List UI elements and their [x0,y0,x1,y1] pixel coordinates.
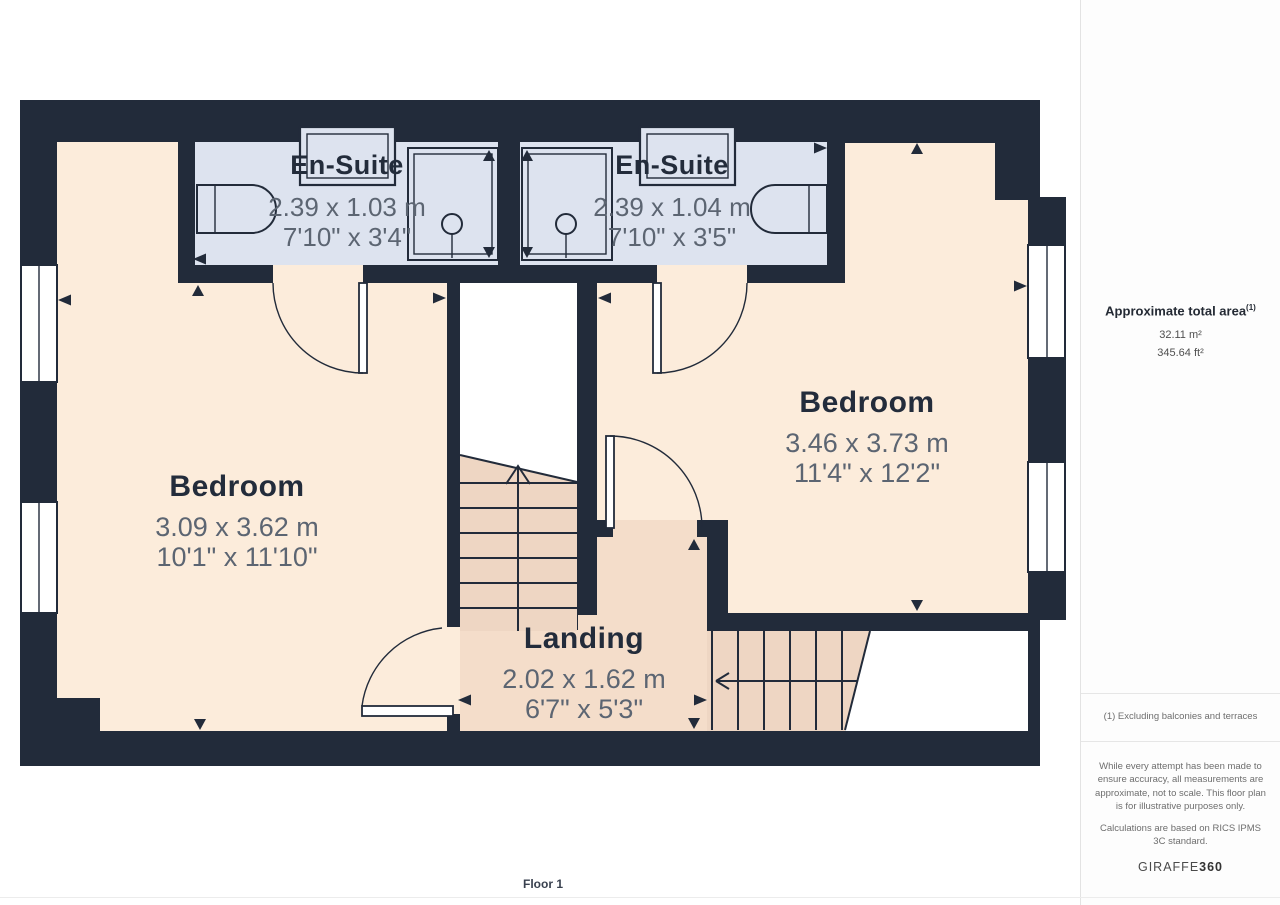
area-footnote: (1) Excluding balconies and terraces [1081,710,1280,723]
room-dims-metric: 3.46 x 3.73 m [785,428,949,458]
room-dims-imperial: 6'7" x 5'3" [502,694,666,724]
room-dims-imperial: 7'10" x 3'4" [268,222,426,252]
room-dims-imperial: 7'10" x 3'5" [593,222,751,252]
room-label-ensuite-right: En-Suite 2.39 x 1.04 m 7'10" x 3'5" [593,150,751,252]
room-name: Bedroom [155,470,319,504]
area-footnote-marker: (1) [1246,303,1256,312]
window-icon [1028,462,1065,572]
floor-label: Floor 1 [523,877,563,891]
area-title: Approximate total area(1) [1081,303,1280,318]
area-title-text: Approximate total area [1105,303,1246,318]
room-name: En-Suite [268,150,426,180]
sidebar-divider [1081,693,1280,694]
door-opening [613,520,697,537]
window-icon [21,502,57,613]
bottom-divider [0,897,1280,898]
room-name: En-Suite [593,150,751,180]
standards-note: Calculations are based on RICS IPMS 3C s… [1081,822,1280,849]
area-metric-value: 32.11 m² [1081,326,1280,344]
total-area-summary: Approximate total area(1) 32.11 m² 345.6… [1081,303,1280,362]
window-icon [21,265,57,382]
door-opening [447,627,460,714]
window-icon [1028,245,1065,358]
brand-suffix: 360 [1199,860,1223,874]
sidebar-divider [1081,741,1280,742]
brand-text: GIRAFFE [1138,860,1199,874]
room-dims-metric: 2.39 x 1.03 m [268,192,426,222]
info-sidebar: Approximate total area(1) 32.11 m² 345.6… [1080,0,1280,905]
room-dims-imperial: 11'4" x 12'2" [785,458,949,488]
disclaimer-text: While every attempt has been made to ens… [1081,760,1280,814]
room-dims-metric: 2.02 x 1.62 m [502,664,666,694]
stairs-lower-void [845,631,1028,731]
door-opening [273,265,363,283]
room-dims-metric: 3.09 x 3.62 m [155,512,319,542]
room-dims-imperial: 10'1" x 11'10" [155,542,319,572]
floor-plan-page: En-Suite 2.39 x 1.03 m 7'10" x 3'4" En-S… [0,0,1280,905]
room-name: Bedroom [785,386,949,420]
room-name: Landing [502,622,666,656]
stairwell-void [460,283,577,482]
area-imperial-value: 345.64 ft² [1081,344,1280,362]
door-opening [657,265,747,283]
giraffe360-logo: GIRAFFE360 [1081,860,1280,874]
room-label-bedroom-left: Bedroom 3.09 x 3.62 m 10'1" x 11'10" [155,470,319,572]
room-label-ensuite-left: En-Suite 2.39 x 1.03 m 7'10" x 3'4" [268,150,426,252]
room-dims-metric: 2.39 x 1.04 m [593,192,751,222]
room-label-landing: Landing 2.02 x 1.62 m 6'7" x 5'3" [502,622,666,724]
room-label-bedroom-right: Bedroom 3.46 x 3.73 m 11'4" x 12'2" [785,386,949,488]
